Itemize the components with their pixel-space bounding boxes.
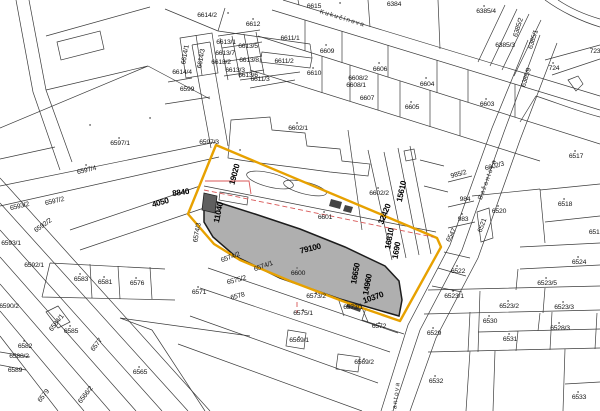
parcel-number-label: 6608/2 <box>348 75 368 82</box>
parcel-number-label: 6608/1 <box>346 82 366 89</box>
parcel-number-label: 6614/3 <box>196 48 206 69</box>
parcel-number-label: 6602/2 <box>369 190 389 197</box>
parcel-number-label: 6590/2 <box>0 303 19 310</box>
parcel-number-label: 6597/3 <box>199 139 219 146</box>
parcel-number-label: 6524 <box>572 259 587 266</box>
parcel-number-label: 6575/1 <box>293 310 313 317</box>
parcel-number-label: 6517 <box>569 153 584 160</box>
parcel-number-label: 6519 <box>589 229 600 236</box>
parcel-number-label: 6575/2 <box>226 275 247 287</box>
parcel-number-label: 984 <box>460 196 471 203</box>
parcel-number-label: 6600 <box>291 270 306 277</box>
parcel-number-label: 6565 <box>133 369 148 376</box>
parcel-number-label: 6581 <box>98 279 113 286</box>
measurement-label: 19020 <box>227 162 241 186</box>
parcel-number-label: 6573/2 <box>306 293 326 300</box>
parcel-number-label: 6577 <box>90 337 105 353</box>
parcel-number-label: 6613/8 <box>239 57 259 64</box>
parcel-number-label: 6599 <box>180 86 195 93</box>
parcel-number-label: 6521 <box>477 217 489 233</box>
parcel-number-label: 6566/2 <box>77 385 95 405</box>
parcel-number-label: 6613/5 <box>238 43 258 50</box>
parcel-number-label: 6588/2 <box>9 353 29 360</box>
parcel-number-label: 6607 <box>360 95 375 102</box>
street-name-label: Bažantova <box>389 381 401 411</box>
parcel-number-label: 6579 <box>37 388 52 404</box>
parcel-number-label: 6614/4 <box>172 69 192 76</box>
parcel-number-label: 6597/2 <box>44 196 65 207</box>
parcel-number-label: 6613/1 <box>216 39 236 46</box>
parcel-number-label: 6520 <box>492 208 507 215</box>
parcel-number-label: 6574/2 <box>220 251 241 264</box>
parcel-number-label: 6609 <box>320 48 335 55</box>
parcel-number-label: 6601 <box>318 214 333 221</box>
parcel-number-label: 6569/2 <box>354 359 374 366</box>
parcel-number-label: 6523/1 <box>444 293 464 300</box>
measurement-label: 32420 <box>377 202 394 226</box>
parcel-number-label: 6613/2 <box>211 59 231 66</box>
parcel-number-label: 6576 <box>130 280 145 287</box>
parcel-number-label: 6583 <box>74 276 89 283</box>
parcel-number-label: 6593/1 <box>1 240 21 247</box>
parcel-number-label: 6593/2 <box>9 201 30 212</box>
parcel-number-label: 6523/5 <box>537 280 557 287</box>
measurement-label: 4050 <box>151 196 171 210</box>
survey-point-dots <box>24 3 578 392</box>
parcel-number-label: 6615 <box>307 3 322 10</box>
parcel-number-label: 6589 <box>8 367 23 374</box>
parcel-number-label: 6385/9 <box>520 67 533 88</box>
parcel-number-label: 6385/3 <box>495 42 515 49</box>
parcel-number-label: 6582 <box>18 343 33 350</box>
parcel-number-label: 6597/4 <box>76 165 97 176</box>
parcel-number-label: 6578 <box>230 291 246 302</box>
parcel-number-label: 6614/2 <box>197 12 217 19</box>
parcel-number-label: 6532 <box>429 378 444 385</box>
parcel-number-label: 6571 <box>192 289 207 296</box>
parcel-number-label: 6602/1 <box>288 125 308 132</box>
parcel-number-label: 6597/1 <box>110 140 130 147</box>
parcel-number-label: 6518 <box>558 201 573 208</box>
parcel-number-label: 6611/1 <box>280 35 300 42</box>
parcel-number-label: 6533 <box>572 394 587 401</box>
parcel-number-label: 6592/2 <box>33 217 53 234</box>
parcel-number-label: 6604 <box>420 81 435 88</box>
parcel-number-label: 6528/3 <box>550 325 570 332</box>
parcel-number-label: 6611/3 <box>250 76 270 83</box>
parcel-number-label: 6530 <box>483 318 498 325</box>
parcel-number-label: 6523/3 <box>554 304 574 311</box>
parcel-number-label: 6605 <box>405 104 420 111</box>
parcel-number-label: 6614/1 <box>180 44 190 65</box>
parcel-number-label: 6384 <box>387 1 402 8</box>
parcel-number-label: 985/2 <box>450 169 468 180</box>
parcel-number-label: 6569/1 <box>289 337 309 344</box>
parcel-number-label: 983 <box>458 216 469 223</box>
parcel-number-label: 6573/1 <box>343 304 363 311</box>
parcel-number-label: 724 <box>549 65 560 72</box>
parcel-number-label: 6572 <box>372 323 387 330</box>
parcel-boundaries <box>0 0 210 170</box>
parcel-number-label: 6585 <box>64 328 79 335</box>
street-name-label: Kukučínova <box>319 8 366 29</box>
parcel-number-label: 6592/1 <box>24 262 44 269</box>
cadastral-map-view[interactable]: 6614/266126611/1661563846385/46385/26385… <box>0 0 600 411</box>
parcel-number-label: 723 <box>590 48 600 55</box>
parcel-number-label: 6547 <box>445 227 458 243</box>
parcel-number-label: 6603 <box>480 101 495 108</box>
parcel-number-label: 6574/3 <box>192 222 202 243</box>
parcel-number-label: 6610 <box>307 70 322 77</box>
parcel-number-label: 6385/4 <box>476 8 496 15</box>
parcel-number-label: 6613/7 <box>215 50 235 57</box>
parcel-number-label: 6611/2 <box>274 58 294 65</box>
parcel-number-label: 6612 <box>246 21 261 28</box>
measurement-label: 1690 <box>391 241 403 260</box>
map-canvas[interactable]: 6614/266126611/1661563846385/46385/26385… <box>0 0 600 411</box>
measurement-label: 8840 <box>172 187 191 198</box>
parcel-number-label: 6523/2 <box>499 303 519 310</box>
parcel-number-label: 6606 <box>373 66 388 73</box>
parcel-number-label: 6385/2 <box>512 17 525 38</box>
parcel-number-label: 6522 <box>451 268 466 275</box>
parcel-number-label: 6531 <box>503 336 518 343</box>
parcel-number-label: 6529 <box>427 330 442 337</box>
labels-layer: 6614/266126611/1661563846385/46385/26385… <box>0 1 600 411</box>
